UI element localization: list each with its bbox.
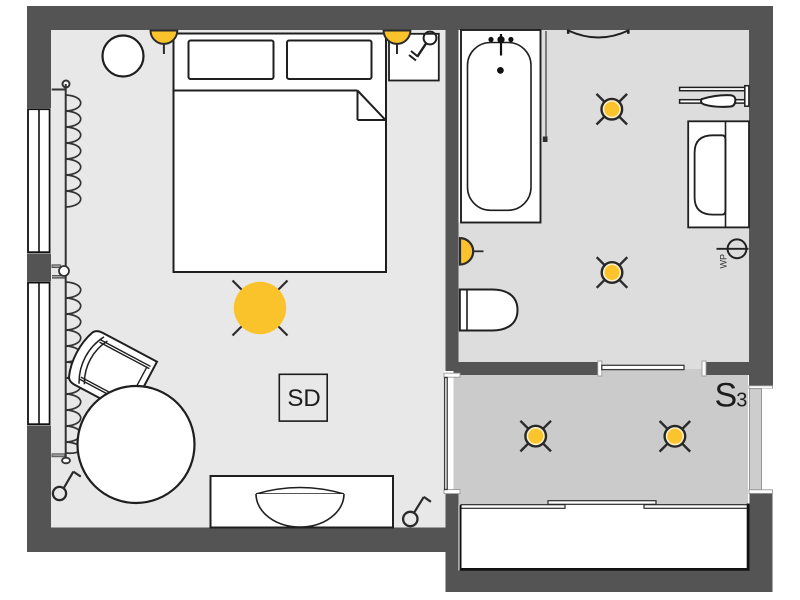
svg-text:SD: SD — [287, 385, 320, 412]
svg-text:WP: WP — [719, 254, 729, 269]
